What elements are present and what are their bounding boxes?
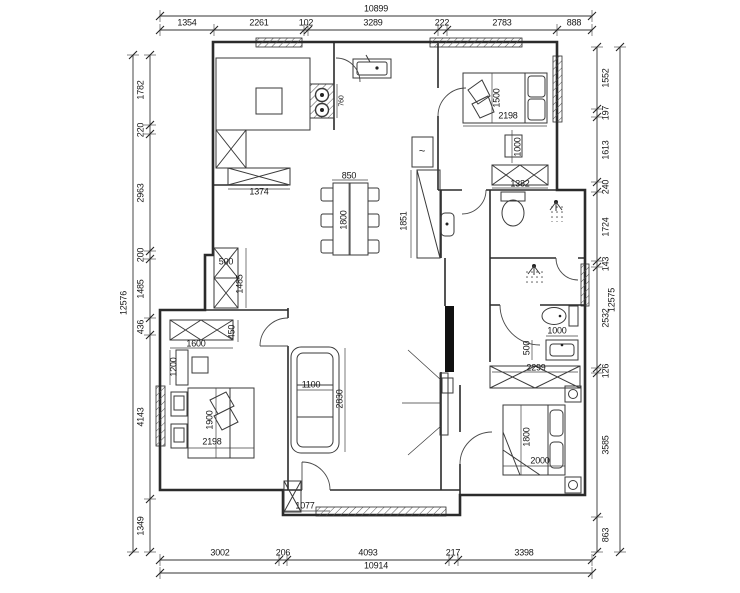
floor-plan-canvas: 1089913542261102328922227838883002206409… xyxy=(0,0,740,593)
dimension-chains xyxy=(0,0,740,593)
